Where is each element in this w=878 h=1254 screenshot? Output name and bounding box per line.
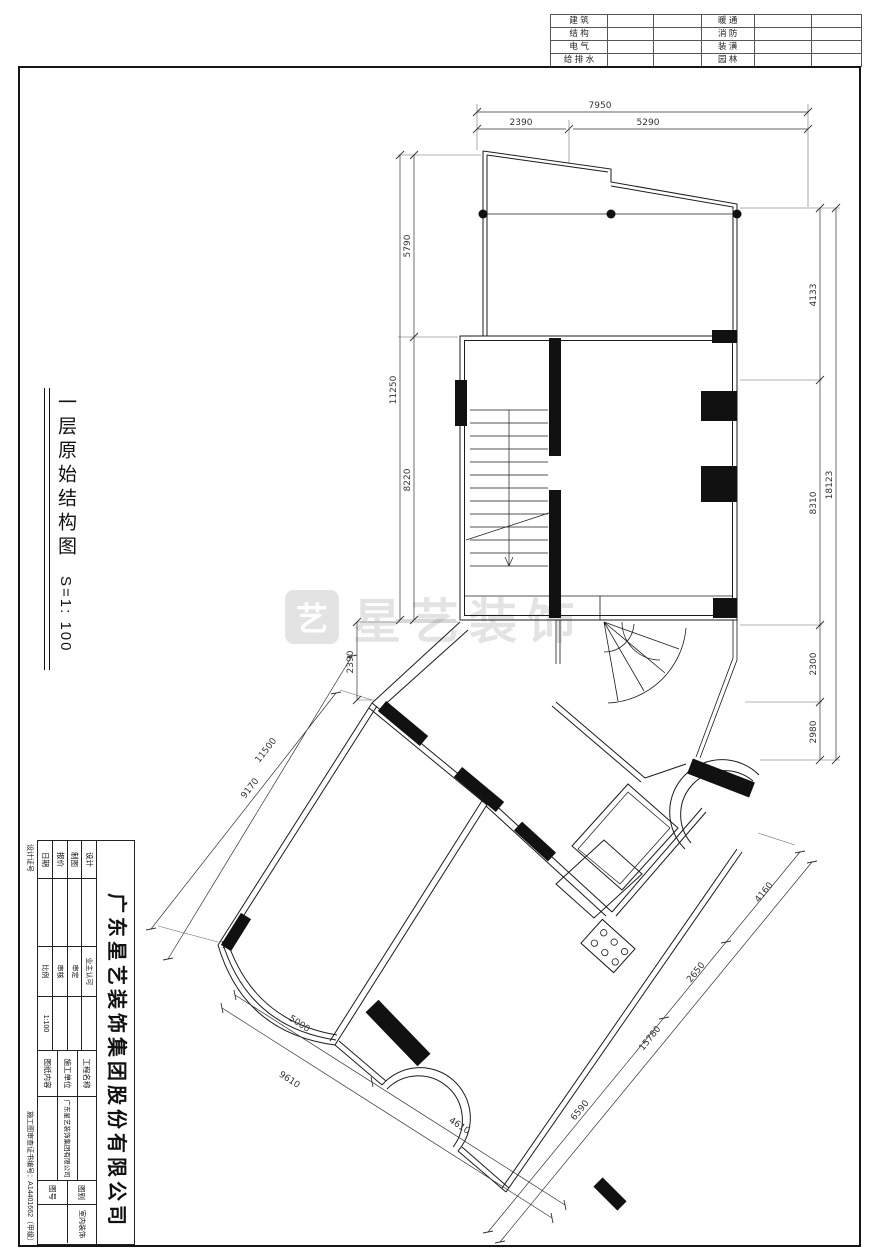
field-label: 施工单位	[58, 1051, 76, 1097]
field-label: 设计	[83, 841, 97, 879]
dim-label: 2650	[685, 960, 707, 984]
field-label: 比例	[38, 947, 53, 997]
dim-label: 2390	[510, 118, 533, 128]
dim-label: 7950	[589, 101, 612, 111]
design-cert-label: 设计证号	[23, 844, 35, 872]
dim-label: 5290	[637, 118, 660, 128]
dim-label: 11250	[389, 375, 399, 404]
dim-label: 15780	[638, 1024, 664, 1053]
field-label: 图号	[38, 1181, 67, 1205]
field-label: 报价	[54, 841, 68, 879]
dimension-ticks	[146, 108, 840, 1243]
field-value	[38, 879, 53, 946]
dimension-labels: 7950 2390 5290 11250 5790 8220 4133 8310…	[239, 101, 835, 1137]
field-label: 日期	[38, 841, 53, 879]
title-block-col-project: 工程名称 施工单位广东星艺装饰集团有限公司 图纸内容	[38, 1051, 96, 1181]
field-label: 审核	[54, 947, 68, 997]
field-value	[68, 879, 82, 946]
field-value	[83, 997, 97, 1050]
field-value	[83, 879, 97, 946]
field-value: 广东星艺装饰集团有限公司	[58, 1097, 76, 1180]
dim-label: 8310	[809, 491, 819, 514]
field-value	[78, 1097, 96, 1180]
dim-label: 18123	[825, 471, 835, 500]
stairs	[466, 410, 552, 566]
title-block-col-sheet: 图别室内装饰 图号	[38, 1181, 96, 1243]
dim-label: 4610	[447, 1116, 472, 1137]
certificate-caption: 设计证号 施工图审查证书编号：A14401662（甲级）	[23, 840, 35, 1245]
field-value: 室内装饰	[68, 1205, 96, 1243]
field-value	[68, 997, 82, 1050]
dim-label: 4133	[809, 284, 819, 307]
house-structural-walls	[226, 706, 752, 1206]
house-walls	[218, 622, 759, 1192]
field-label: 图别	[68, 1181, 96, 1205]
balcony-outline	[483, 151, 737, 336]
field-value	[38, 1205, 67, 1243]
dim-label: 5000	[287, 1014, 312, 1035]
dim-label: 5790	[403, 234, 413, 257]
field-value: 1:100	[38, 997, 53, 1050]
dim-label: 9170	[239, 776, 261, 800]
winder-stair	[556, 620, 737, 758]
extension-lines	[158, 104, 840, 942]
field-value	[38, 1097, 57, 1180]
dim-label: 9610	[277, 1070, 302, 1091]
field-label: 审定	[68, 947, 82, 997]
title-block-table: 广东星艺装饰集团股份有限公司 设计 制图 报价 日期 业主认可 审定 审核 比例…	[37, 840, 135, 1245]
dim-label: 2300	[809, 652, 819, 675]
field-label: 工程名称	[78, 1051, 96, 1097]
field-label: 业主认可	[83, 947, 97, 997]
field-label: 制图	[68, 841, 82, 879]
drawing-sheet: 建 筑 暖 通 结 构 消 防 电 气 装 潢 给 排 水	[0, 0, 878, 1254]
field-value	[54, 879, 68, 946]
main-block-walls	[460, 336, 737, 620]
field-value	[54, 997, 68, 1050]
field-label: 图纸内容	[38, 1051, 57, 1097]
window-grid	[581, 919, 635, 972]
dim-label: 2980	[809, 720, 819, 743]
structural-walls	[455, 330, 737, 618]
review-cert-number: 施工图审查证书编号：A14401662（甲级）	[23, 1111, 35, 1245]
company-name: 广东星艺装饰集团股份有限公司	[96, 841, 134, 1244]
dim-label: 11500	[254, 736, 280, 765]
title-block-col-review: 业主认可 审定 审核 比例1:100	[38, 947, 96, 1051]
dim-label: 8220	[403, 468, 413, 491]
dim-label: 4160	[753, 880, 775, 904]
title-block: 广东星艺装饰集团股份有限公司 设计 制图 报价 日期 业主认可 审定 审核 比例…	[23, 840, 135, 1245]
dim-label: 2390	[346, 650, 356, 673]
title-block-col-signoff: 设计 制图 报价 日期	[38, 841, 96, 947]
